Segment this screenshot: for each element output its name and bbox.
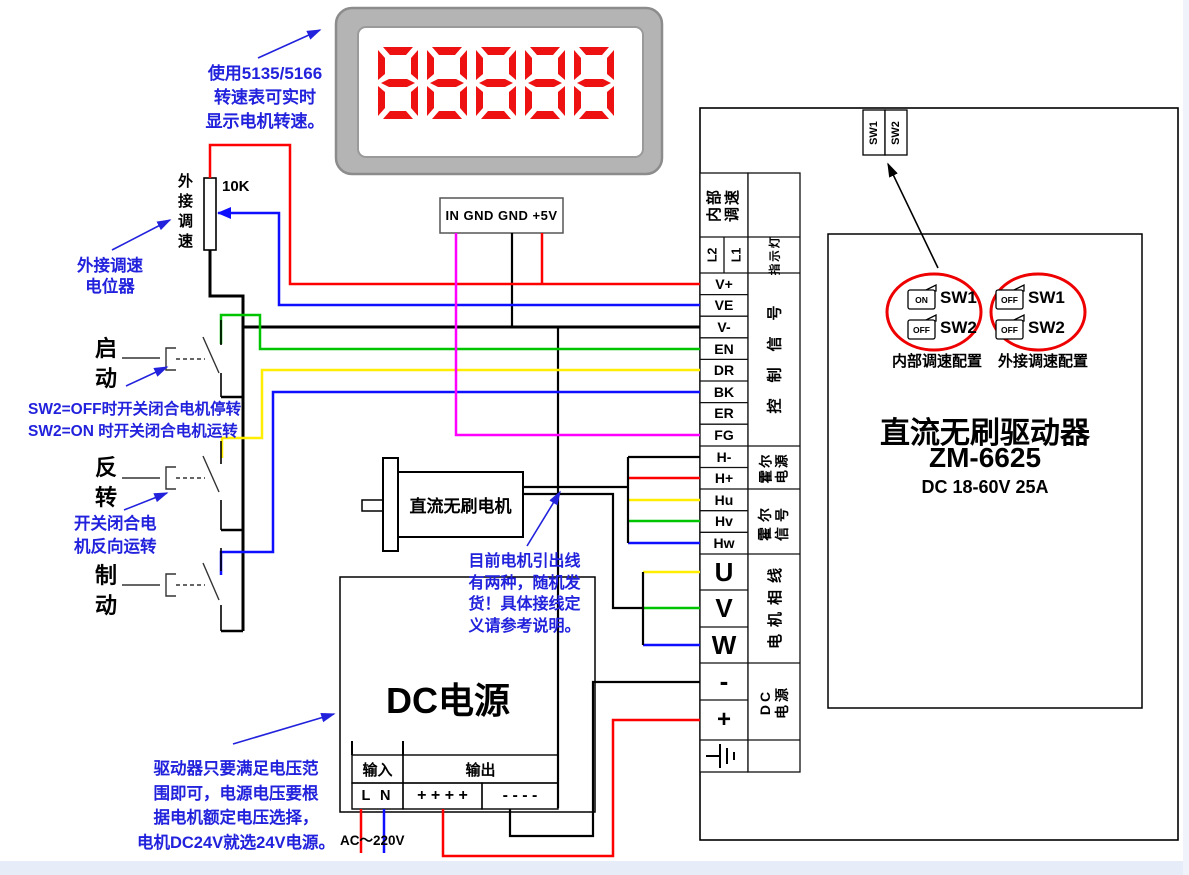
- sw2-tab: SW2: [885, 110, 907, 155]
- terminal-hplus: H+: [700, 468, 748, 490]
- terminal-vminus: V-: [700, 316, 748, 338]
- brake-switch-label: 制动: [95, 561, 119, 621]
- potentiometer-body: [204, 178, 216, 250]
- reverse-arrow: [124, 493, 167, 510]
- brake-switch-symbol: [122, 548, 221, 631]
- window-right-strip: [1183, 0, 1189, 875]
- pot-vertical-label: 外接调速: [178, 172, 195, 252]
- wire-en: [221, 315, 700, 349]
- sw1-tab: SW1: [863, 110, 885, 155]
- dip-label: SW2: [1028, 318, 1065, 338]
- dip-state: OFF: [996, 321, 1023, 338]
- start-switch-symbol: [122, 320, 221, 397]
- psu-minus-terminals: - - - -: [482, 783, 558, 809]
- psu-note-arrow: [233, 714, 334, 744]
- terminal-en: EN: [700, 338, 748, 360]
- sw2-behavior-note: SW2=OFF时开关闭合电机停转 SW2=ON 时开关闭合电机运转: [28, 399, 241, 443]
- psu-plus-terminals: + + + +: [403, 783, 482, 809]
- window-bottom-strip: [0, 861, 1189, 875]
- reverse-behavior-note: 开关闭合电 机反向运转: [74, 513, 157, 559]
- wiper-arrowhead: [217, 207, 231, 219]
- dip-state: OFF: [908, 321, 935, 338]
- wiring-diagram: 使用5135/5166 转速表可实时 显示电机转速。 IN GND GND +5…: [0, 0, 1189, 875]
- wire-dr: [222, 370, 700, 458]
- group-indicator-label: 指示灯: [748, 237, 800, 273]
- driver-spec: DC 18-60V 25A: [850, 477, 1120, 498]
- group-hall-signal-label: 霍尔 信号: [748, 489, 800, 554]
- tach-note-arrow: [258, 30, 320, 58]
- motor-note: 目前电机引出线 有两种，随机发 货！具体接线定 义请参考说明。: [452, 551, 597, 637]
- dip-state: ON: [908, 291, 935, 308]
- dip-state: OFF: [996, 291, 1023, 308]
- terminal-hv: Hv: [700, 511, 748, 533]
- start-switch-label: 启动: [95, 334, 119, 394]
- pot-note-arrow: [112, 220, 170, 250]
- reverse-switch-label: 反转: [95, 453, 119, 513]
- motor-label: 直流无刷电机: [398, 472, 523, 537]
- terminal-v: V: [700, 590, 748, 627]
- dip-label: SW2: [940, 318, 977, 338]
- group-control-label: 控制信号: [748, 273, 800, 446]
- group-dc-power-label: DC 电源: [748, 663, 800, 740]
- terminal-internal-speed: 内部 调速: [700, 173, 748, 237]
- terminal-hw: Hw: [700, 532, 748, 554]
- wire-pot-to-bus: [210, 250, 243, 296]
- terminal-minus: -: [700, 663, 748, 700]
- terminal-u: U: [700, 554, 748, 590]
- terminal-dr: DR: [700, 359, 748, 381]
- tach-connector-label: IN GND GND +5V: [440, 198, 563, 233]
- motor-note-arrow: [527, 492, 560, 546]
- terminal-vplus: V+: [700, 273, 748, 295]
- wire-fg: [456, 233, 700, 435]
- tachometer-note: 使用5135/5166 转速表可实时 显示电机转速。: [196, 62, 334, 134]
- psu-input-header: 输入: [352, 755, 403, 783]
- driver-model: ZM-6625: [850, 442, 1120, 474]
- pot-note: 外接调速 电位器: [68, 256, 152, 298]
- dip-label: SW1: [1028, 288, 1065, 308]
- psu-note: 驱动器只要满足电压范 围即可，电源电压要根 据电机额定电压选择， 电机DC24V…: [122, 757, 350, 855]
- external-config-caption: 外接调速配置: [990, 350, 1096, 371]
- dip-label: SW1: [940, 288, 977, 308]
- psu-output-header: 输出: [403, 755, 558, 783]
- terminal-hminus: H-: [700, 446, 748, 468]
- terminal-fg: FG: [700, 424, 748, 446]
- terminal-l2: L2: [700, 237, 724, 273]
- terminal-bk: BK: [700, 381, 748, 403]
- terminal-w: W: [700, 627, 748, 663]
- psu-title: DC电源: [362, 672, 534, 724]
- group-phase-label: 电机相线: [748, 554, 800, 663]
- pot-value-label: 10K: [222, 178, 250, 195]
- tachometer-display: [336, 8, 662, 174]
- internal-config-caption: 内部调速配置: [884, 350, 990, 371]
- terminal-l1: L1: [724, 237, 748, 273]
- group-hall-power-label: 霍尔 电源: [748, 446, 800, 489]
- psu-input-terminals: L N: [352, 783, 403, 809]
- terminal-hu: Hu: [700, 489, 748, 511]
- switch-symbols: [122, 320, 221, 631]
- start-arrow: [126, 367, 167, 386]
- terminal-plus: +: [700, 700, 748, 740]
- terminal-ve: VE: [700, 295, 748, 317]
- terminal-er: ER: [700, 403, 748, 425]
